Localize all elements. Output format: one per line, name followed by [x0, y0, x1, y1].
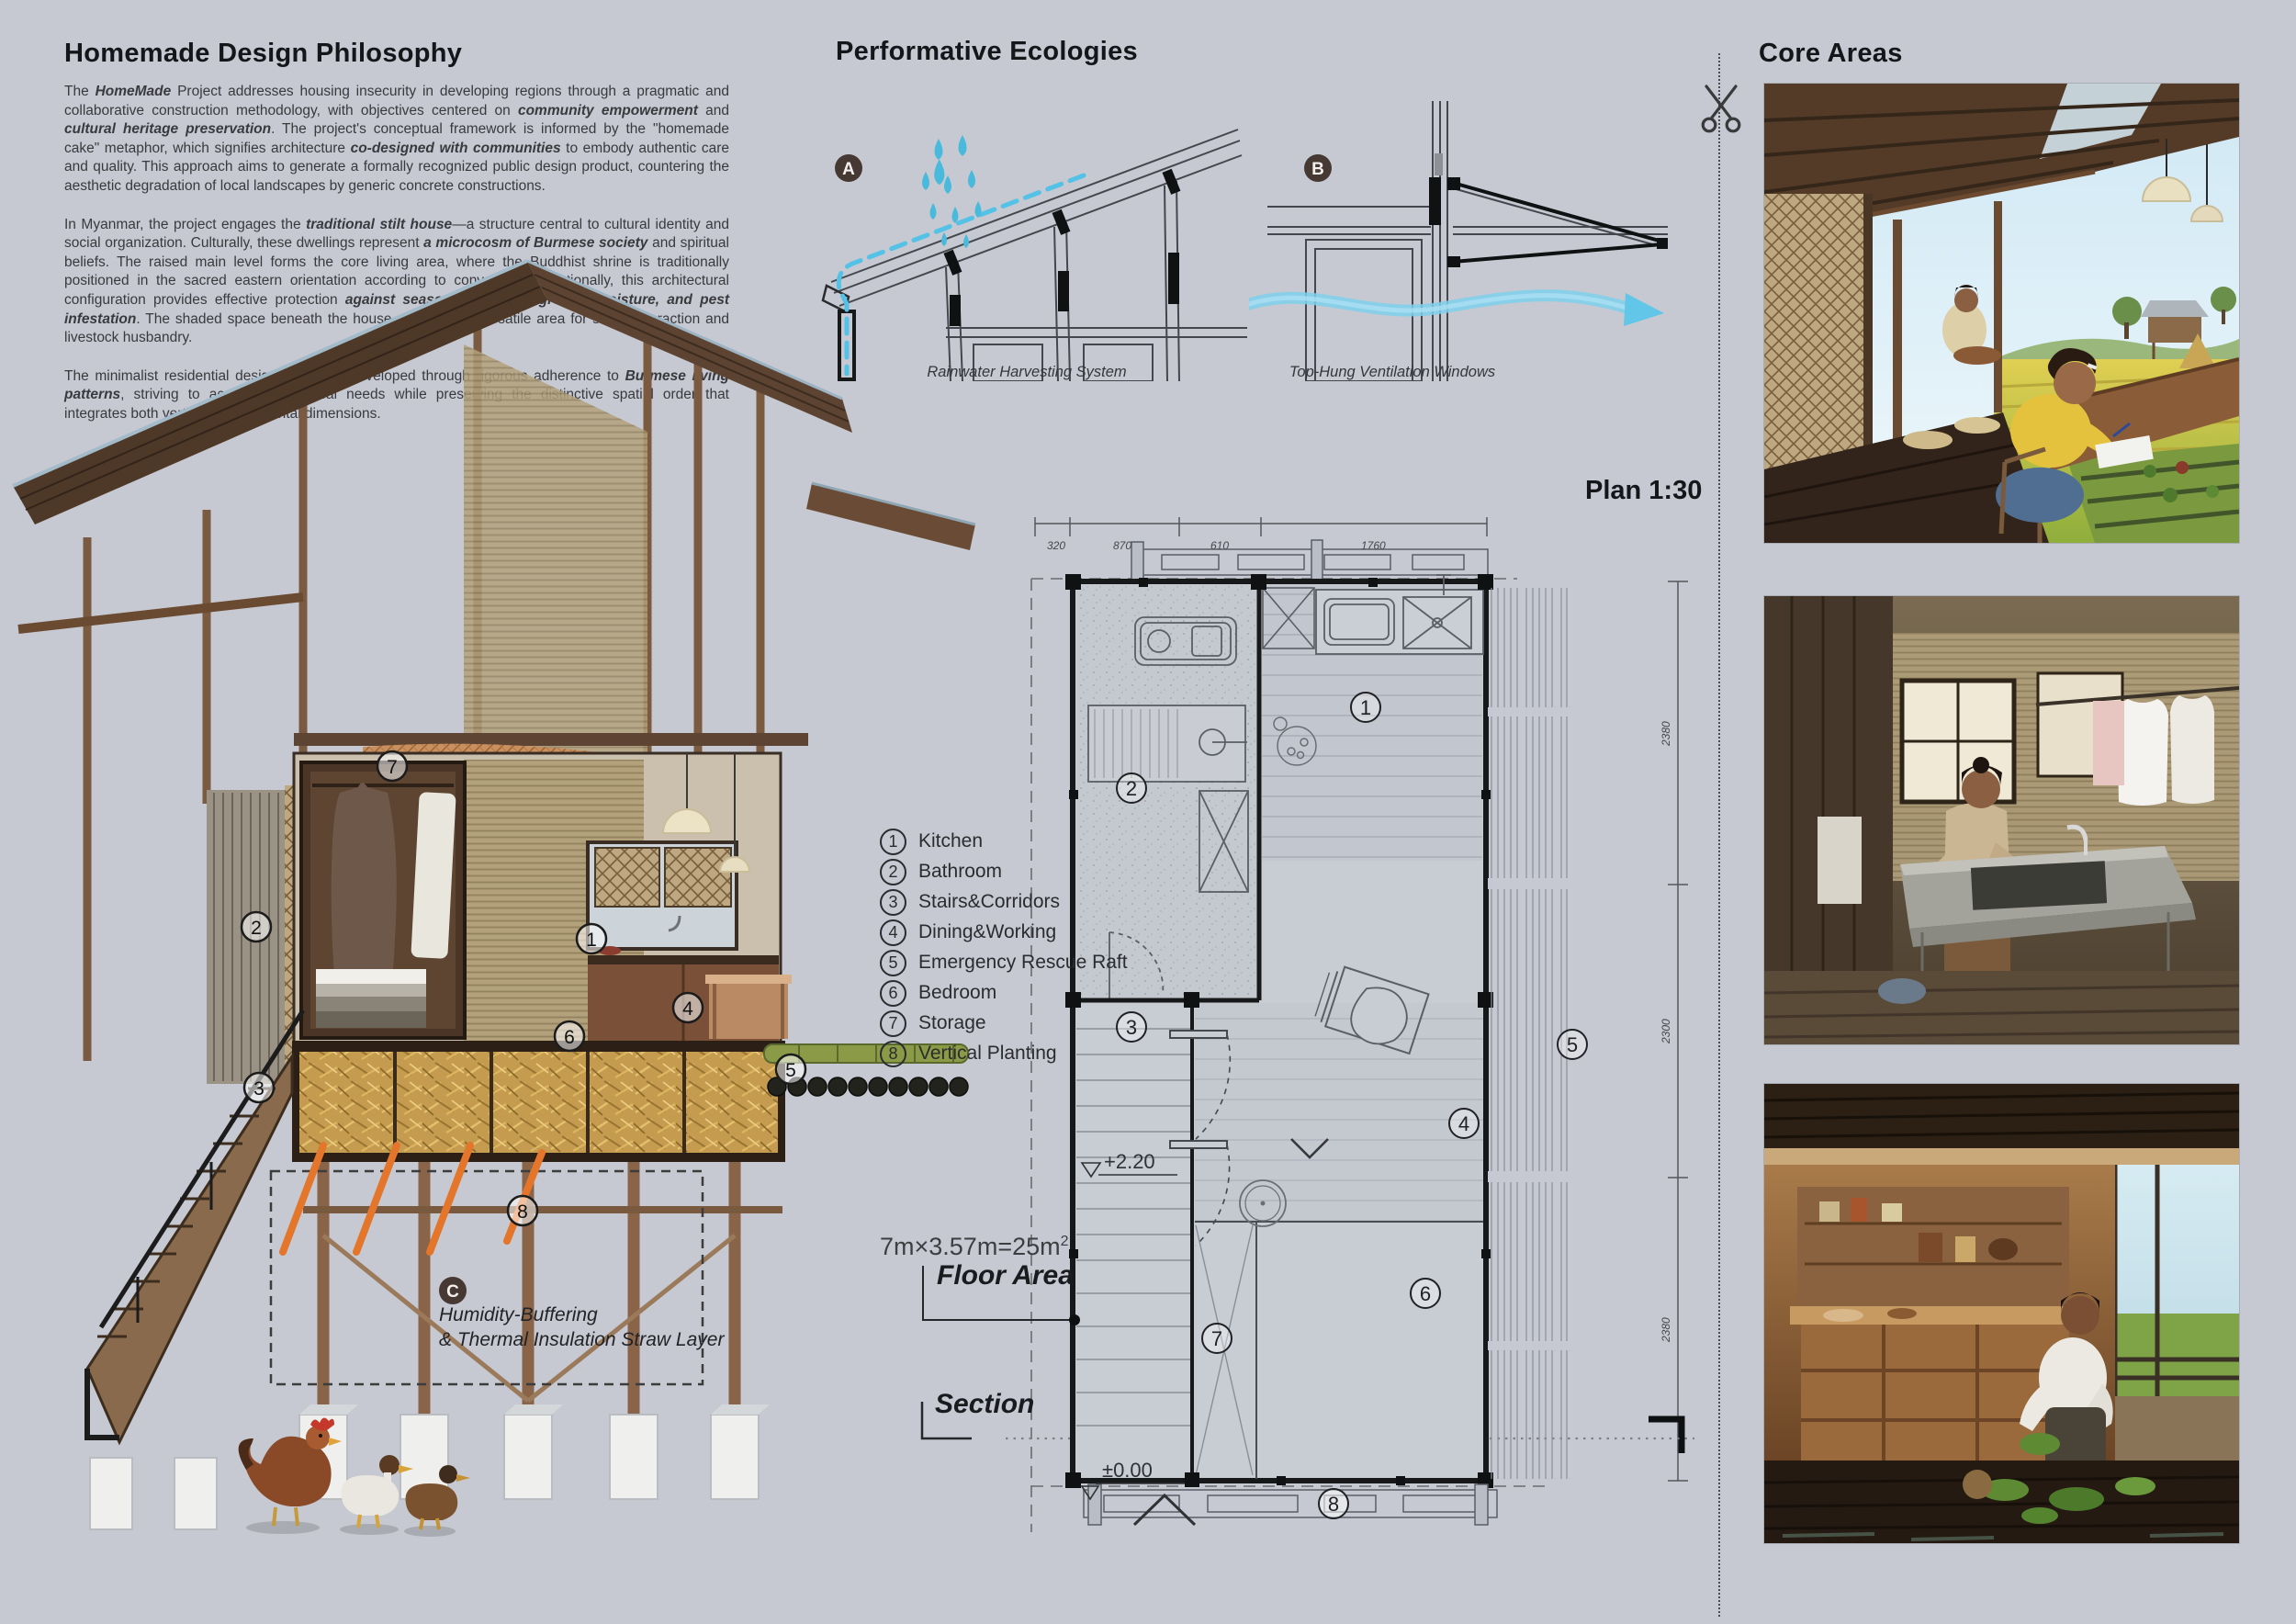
- svg-text:±0.00: ±0.00: [1102, 1459, 1153, 1482]
- plan-dimension-right: 2380 2300 2380: [1649, 581, 1688, 1481]
- philosophy-paragraph-1: The HomeMade Project addresses housing i…: [64, 83, 729, 197]
- legend-number: 4: [880, 919, 906, 946]
- legend-number: 6: [880, 980, 906, 1007]
- scissors-icon: [1701, 85, 1741, 136]
- svg-text:8: 8: [1328, 1493, 1339, 1516]
- render-wardrobe: [301, 762, 465, 1038]
- legend-item-bedroom: 6Bedroom: [880, 981, 1128, 1005]
- photo3-backsplash-shelves: [1797, 1187, 2069, 1306]
- photo-kitchen: [1764, 1084, 2239, 1543]
- core-areas-title: Core Areas: [1759, 39, 1903, 69]
- render-dining-table: [705, 975, 792, 1039]
- render-straw-layer: [292, 1041, 785, 1162]
- window-track: [1435, 153, 1443, 175]
- svg-text:C: C: [446, 1282, 459, 1302]
- render-interior: [294, 753, 792, 1043]
- plan-top-planting-ledge: [1131, 540, 1488, 582]
- render-kitchen-window: [588, 842, 737, 949]
- legend-label: Storage: [918, 1012, 986, 1034]
- legend-item-kitchen: 1Kitchen: [880, 829, 1128, 853]
- render-gable-panel: [464, 344, 647, 753]
- svg-text:4: 4: [682, 998, 693, 1020]
- render-towel-stack: [316, 969, 426, 1028]
- legend-item-storage: 7Storage: [880, 1011, 1128, 1035]
- legend-number: 1: [880, 829, 906, 855]
- airflow-arrow: [1249, 293, 1664, 326]
- straw-layer-caption: Humidity-Buffering & Thermal Insulation …: [439, 1303, 724, 1352]
- svg-text:8: 8: [517, 1201, 528, 1223]
- render-left-beam: [18, 597, 303, 629]
- top-hung-sash: [1447, 177, 1668, 267]
- legend-item-bathroom: 2Bathroom: [880, 860, 1128, 884]
- legend-label: Bedroom: [918, 982, 996, 1004]
- label-b-badge: B: [1304, 154, 1332, 182]
- legend-number: 5: [880, 950, 906, 976]
- cut-line: [1718, 53, 1720, 1617]
- svg-text:5: 5: [785, 1060, 796, 1081]
- legend-label: Kitchen: [918, 830, 983, 852]
- photo-dining-working: [1764, 84, 2239, 543]
- svg-text:1: 1: [1360, 696, 1371, 719]
- wall-section-lines: [1267, 101, 1668, 381]
- photo3-exterior-view: [2115, 1165, 2239, 1396]
- svg-text:1760: 1760: [1361, 539, 1386, 552]
- diagram-b-caption: Top-Hung Ventilation Windows: [1245, 364, 1539, 381]
- svg-text:+2.20: +2.20: [1104, 1150, 1155, 1173]
- window-frame: [1429, 177, 1441, 225]
- legend-label: Bathroom: [918, 861, 1002, 883]
- plan-legend: 1Kitchen 2Bathroom 3Stairs&Corridors 4Di…: [880, 829, 1128, 1066]
- legend-number: 2: [880, 859, 906, 885]
- rain-drops: [922, 135, 982, 248]
- plan-title: Plan 1:30: [1585, 476, 1702, 506]
- presentation-board: Homemade Design Philosophy The HomeMade …: [0, 0, 2296, 1624]
- legend-label: Emergency Rescue Raft: [918, 952, 1128, 974]
- plan-right-planting: [1488, 588, 1570, 1479]
- legend-item-dining: 4Dining&Working: [880, 920, 1128, 944]
- svg-text:3: 3: [253, 1078, 264, 1100]
- svg-text:2300: 2300: [1660, 1019, 1672, 1044]
- legend-number: 3: [880, 889, 906, 916]
- svg-text:7: 7: [387, 757, 398, 778]
- legend-item-raft: 5Emergency Rescue Raft: [880, 951, 1128, 975]
- svg-text:A: A: [842, 160, 855, 179]
- philosophy-title: Homemade Design Philosophy: [64, 39, 462, 69]
- photo-laundry: [1764, 596, 2239, 1044]
- render-chicken: [239, 1417, 342, 1534]
- photo2-hanging-towel: [1818, 817, 1862, 904]
- svg-text:1: 1: [586, 930, 597, 951]
- svg-text:5: 5: [1567, 1033, 1578, 1056]
- svg-text:2: 2: [251, 918, 262, 939]
- svg-text:3: 3: [1126, 1016, 1137, 1039]
- legend-label: Vertical Planting: [918, 1043, 1057, 1065]
- plan-dining-floor: [1195, 1003, 1483, 1222]
- ecologies-title: Performative Ecologies: [836, 37, 1138, 67]
- render-ceiling-beam: [294, 733, 808, 746]
- legend-item-stairs: 3Stairs&Corridors: [880, 890, 1128, 914]
- svg-text:B: B: [1311, 160, 1324, 179]
- legend-label: Dining&Working: [918, 921, 1056, 943]
- svg-text:2380: 2380: [1660, 721, 1672, 747]
- svg-text:4: 4: [1458, 1112, 1469, 1135]
- legend-item-planting: 8Vertical Planting: [880, 1042, 1128, 1066]
- plan-dimension-top: 320 870 610 1760: [1035, 517, 1487, 552]
- photo3-eave-glow: [1764, 1148, 2239, 1165]
- svg-text:6: 6: [1420, 1282, 1431, 1305]
- svg-text:7: 7: [1211, 1327, 1222, 1350]
- label-a-badge: A: [835, 154, 862, 182]
- legend-number: 8: [880, 1041, 906, 1067]
- svg-text:6: 6: [564, 1027, 575, 1048]
- svg-text:2380: 2380: [1660, 1317, 1672, 1343]
- render-label-c: C: [439, 1277, 467, 1304]
- svg-text:2: 2: [1126, 777, 1137, 800]
- photo2-basin: [1878, 978, 1926, 1004]
- ventilation-window-diagram: B: [1249, 87, 1671, 381]
- svg-text:320: 320: [1047, 539, 1065, 552]
- legend-label: Stairs&Corridors: [918, 891, 1060, 913]
- svg-text:610: 610: [1210, 539, 1229, 552]
- svg-text:870: 870: [1113, 539, 1131, 552]
- plan-bottom-planting: [1084, 1484, 1497, 1525]
- legend-number: 7: [880, 1010, 906, 1037]
